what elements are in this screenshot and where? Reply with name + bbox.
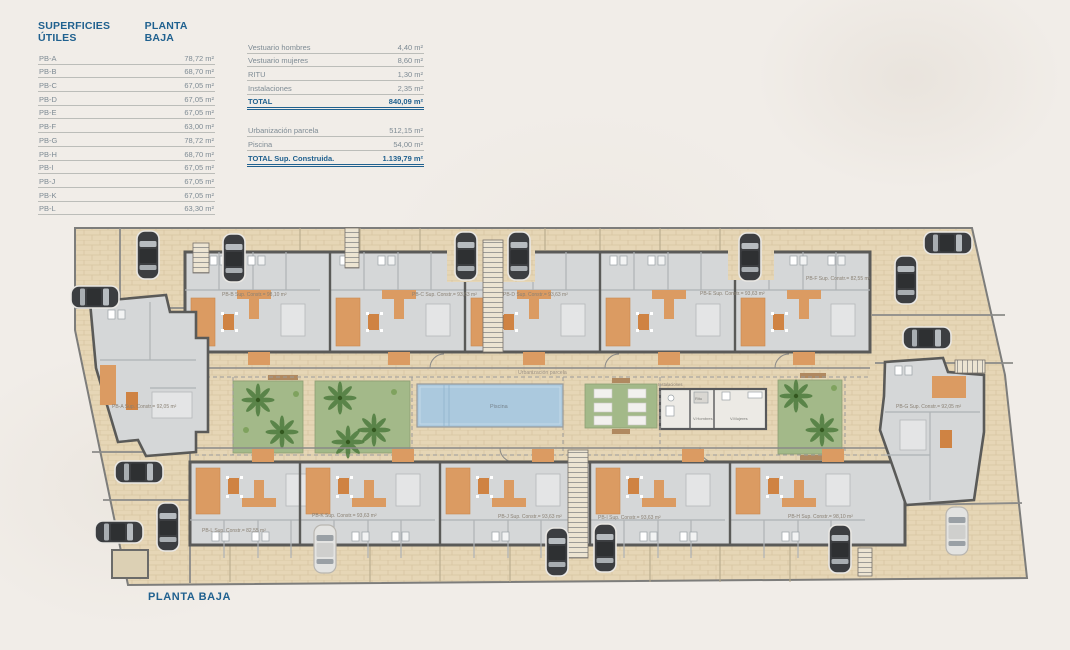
pergola xyxy=(585,378,657,434)
unit-label-pb-a: PB-A Sup. Constr.= 92,05 m² xyxy=(112,404,177,410)
unit-label-pb-h: PB-H Sup. Constr.= 98,10 m² xyxy=(788,514,853,520)
facility-room-ritu: Ritu xyxy=(695,396,702,401)
unit-label-pb-j: PB-J Sup. Constr.= 93,63 m² xyxy=(498,514,562,520)
facilities-building: Instalaciones Ritu V.Hombres V.Mujeres xyxy=(658,382,766,429)
floor-plan: Piscina Instalaci xyxy=(0,0,1070,650)
plan-footer-title: PLANTA BAJA xyxy=(148,591,231,603)
parcel-label: Urbanización parcela xyxy=(518,370,567,376)
page: SUPERFICIES ÚTILES PLANTA BAJA PB-A 78,7… xyxy=(0,0,1070,650)
facilities-title: Instalaciones xyxy=(658,382,682,387)
unit-label-pb-l: PB-L Sup. Constr.= 82,55 m² xyxy=(202,528,266,534)
unit-label-pb-g: PB-G Sup. Constr.= 92,05 m² xyxy=(896,404,962,410)
unit-label-pb-k: PB-K Sup. Constr.= 93,63 m² xyxy=(312,513,377,519)
unit-label-pb-e: PB-E Sup. Constr.= 93,63 m² xyxy=(700,291,765,297)
unit-label-pb-d: PB-D Sup. Constr.= 93,63 m² xyxy=(503,292,568,298)
outbuilding xyxy=(112,550,148,578)
unit-label-pb-c: PB-C Sup. Constr.= 93,63 m² xyxy=(412,292,477,298)
unit-label-pb-i: PB-I Sup. Constr.= 93,63 m² xyxy=(598,515,661,521)
facility-room-mujeres: V.Mujeres xyxy=(730,416,748,421)
pool: Piscina xyxy=(417,384,563,427)
unit-label-pb-b: PB-B Sup. Constr.= 98,10 m² xyxy=(222,292,287,298)
facility-room-hombres: V.Hombres xyxy=(693,416,713,421)
pool-label: Piscina xyxy=(490,404,509,410)
unit-label-pb-f: PB-F Sup. Constr.= 82,55 m² xyxy=(806,276,871,282)
